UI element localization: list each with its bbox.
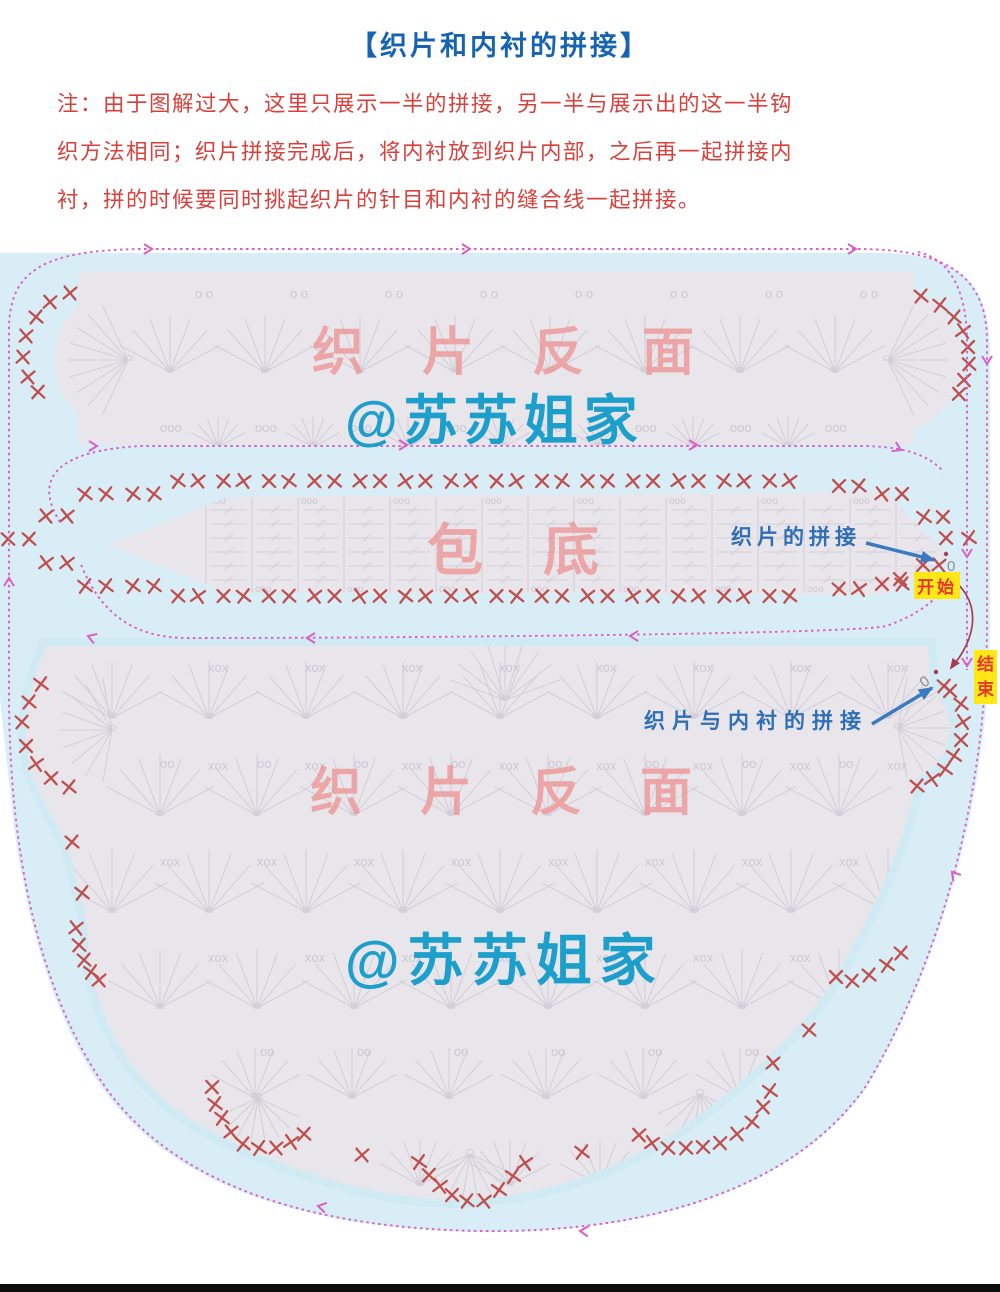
svg-text:xox: xox [596, 660, 617, 675]
crochet-diagram-canvas: o oo oo oo oo oo oo oo ooooooooooooooooo… [0, 0, 1000, 1292]
svg-text:o o: o o [290, 286, 308, 301]
svg-text:ooo: ooo [160, 420, 182, 435]
svg-text:xox: xox [693, 950, 714, 965]
svg-text:xox: xox [305, 660, 326, 675]
label-join-pieces: 织片的拼接 [731, 521, 861, 551]
bottom-bar [0, 1284, 1000, 1292]
svg-text:xox: xox [499, 660, 520, 675]
svg-text:o o: o o [480, 286, 498, 301]
svg-text:oo: oo [745, 1044, 759, 1059]
svg-text:xox: xox [887, 758, 908, 773]
label-join-lining: 织片与内衬的拼接 [644, 705, 868, 735]
svg-text:ooo: ooo [807, 584, 824, 595]
watermark-bottom-piece-back: 织片反面 [310, 750, 750, 825]
svg-text:oo: oo [357, 1044, 371, 1059]
svg-text:o o: o o [860, 286, 878, 301]
svg-text:xox: xox [208, 660, 229, 675]
svg-text:o o: o o [385, 286, 403, 301]
svg-text:xox: xox [645, 854, 666, 869]
svg-text:ooo: ooo [393, 496, 410, 507]
watermark-top-handle: @苏苏姐家 [345, 376, 644, 455]
svg-text:oo: oo [257, 756, 271, 771]
svg-text:xox: xox [451, 854, 472, 869]
svg-text:xox: xox [354, 854, 375, 869]
end-badge: 结束 [974, 650, 997, 704]
svg-text:o o: o o [195, 286, 213, 301]
svg-text:ooo: ooo [301, 496, 318, 507]
svg-text:oo: oo [160, 756, 174, 771]
svg-text:xox: xox [693, 660, 714, 675]
svg-text:o o: o o [765, 286, 783, 301]
svg-text:oo: oo [260, 1044, 274, 1059]
watermark-top-piece-back: 织片反面 [312, 310, 752, 385]
svg-text:oo: oo [551, 1044, 565, 1059]
svg-text:xox: xox [790, 660, 811, 675]
svg-text:o o: o o [670, 286, 688, 301]
svg-text:ooo: ooo [669, 496, 686, 507]
svg-text:ooo: ooo [853, 496, 870, 507]
svg-text:xox: xox [208, 758, 229, 773]
svg-text:xox: xox [548, 854, 569, 869]
watermark-bag-bottom: 包底 [427, 506, 659, 587]
svg-text:xox: xox [839, 854, 860, 869]
svg-text:o o: o o [575, 286, 593, 301]
svg-text:oo: oo [454, 1044, 468, 1059]
svg-text:xox: xox [742, 854, 763, 869]
svg-text:oo: oo [839, 756, 853, 771]
svg-text:ooo: ooo [255, 420, 277, 435]
svg-text:xox: xox [160, 854, 181, 869]
crochet-pattern-page: 【织片和内衬的拼接】 注：由于图解过大，这里只展示一半的拼接，另一半与展示出的这… [0, 0, 1000, 1292]
svg-text:ooo: ooo [761, 496, 778, 507]
watermark-bottom-handle: @苏苏姐家 [345, 916, 664, 997]
svg-text:xox: xox [305, 950, 326, 965]
svg-text:xox: xox [208, 950, 229, 965]
start-badge: 开始 [914, 572, 960, 599]
svg-text:xox: xox [257, 854, 278, 869]
svg-text:oo: oo [648, 1044, 662, 1059]
svg-text:xox: xox [402, 660, 423, 675]
svg-text:ooo: ooo [825, 420, 847, 435]
svg-text:xox: xox [790, 950, 811, 965]
svg-text:xox: xox [790, 758, 811, 773]
svg-text:xox: xox [887, 660, 908, 675]
svg-text:ooo: ooo [730, 420, 752, 435]
